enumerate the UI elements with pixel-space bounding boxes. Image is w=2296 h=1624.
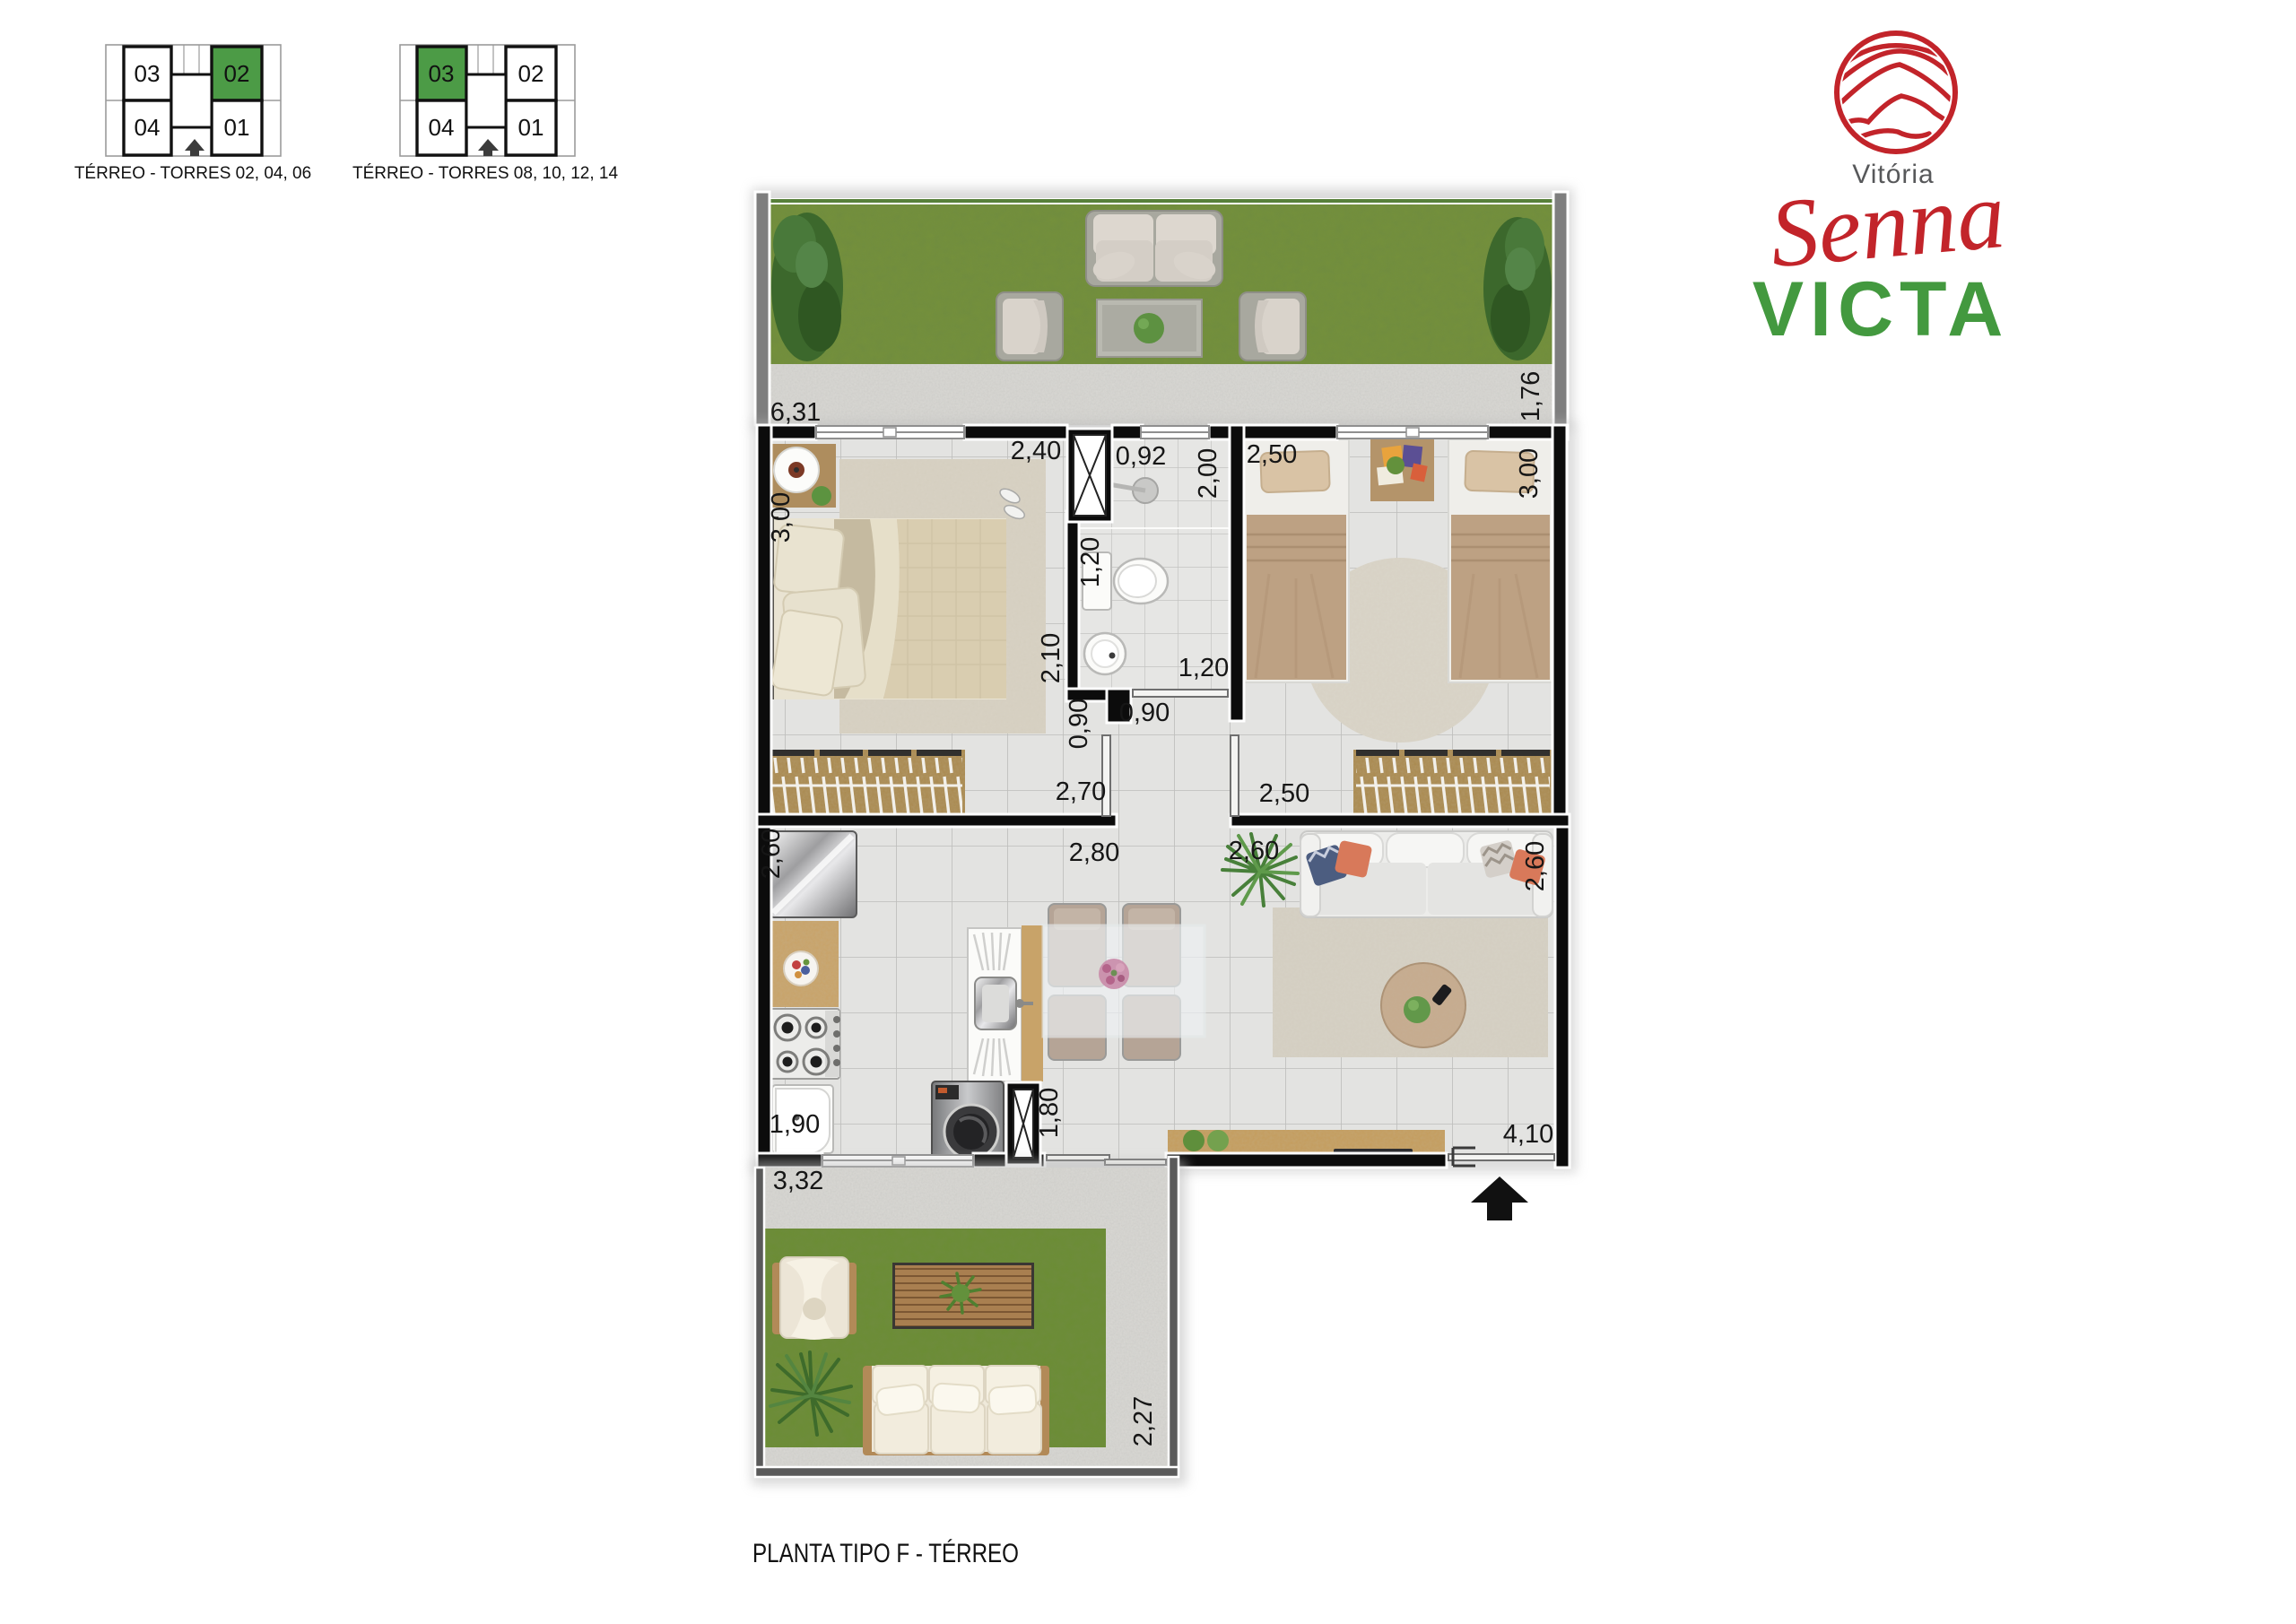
svg-text:01: 01 [518, 114, 544, 141]
svg-text:3,00: 3,00 [1515, 448, 1544, 499]
svg-text:0,90: 0,90 [1119, 699, 1170, 727]
svg-text:1,90: 1,90 [770, 1110, 820, 1139]
svg-text:2,40: 2,40 [1011, 437, 1061, 465]
svg-text:3,00: 3,00 [767, 492, 796, 543]
svg-text:03: 03 [429, 60, 455, 87]
svg-text:2,60: 2,60 [1229, 837, 1279, 865]
svg-text:01: 01 [224, 114, 250, 141]
svg-text:1,20: 1,20 [1076, 537, 1105, 587]
svg-text:TÉRREO - TORRES 02, 04, 06: TÉRREO - TORRES 02, 04, 06 [74, 164, 311, 183]
svg-text:1,20: 1,20 [1178, 654, 1229, 682]
svg-text:02: 02 [518, 60, 544, 87]
svg-text:02: 02 [224, 60, 250, 87]
svg-text:2,60: 2,60 [1521, 841, 1550, 891]
svg-text:4,10: 4,10 [1503, 1120, 1553, 1149]
svg-text:03: 03 [135, 60, 161, 87]
svg-text:2,50: 2,50 [1259, 779, 1309, 808]
svg-text:1,80: 1,80 [1035, 1088, 1064, 1138]
svg-text:3,32: 3,32 [773, 1167, 823, 1195]
svg-text:2,80: 2,80 [1069, 838, 1119, 867]
svg-text:0,90: 0,90 [1065, 699, 1093, 749]
svg-text:2,50: 2,50 [1247, 440, 1297, 469]
svg-text:2,70: 2,70 [1056, 777, 1106, 806]
svg-text:VICTA: VICTA [1752, 266, 2010, 352]
svg-text:2,10: 2,10 [1037, 633, 1065, 683]
svg-text:04: 04 [429, 114, 455, 141]
svg-text:2,60: 2,60 [757, 829, 786, 879]
svg-text:2,27: 2,27 [1129, 1396, 1158, 1446]
svg-text:1,76: 1,76 [1517, 371, 1545, 421]
svg-text:2,00: 2,00 [1194, 448, 1222, 499]
svg-text:PLANTA TIPO F - TÉRREO: PLANTA TIPO F - TÉRREO [752, 1539, 1019, 1568]
svg-text:0,92: 0,92 [1116, 442, 1166, 471]
svg-text:TÉRREO - TORRES 08, 10, 12, 14: TÉRREO - TORRES 08, 10, 12, 14 [352, 164, 618, 183]
svg-text:04: 04 [135, 114, 161, 141]
svg-text:6,31: 6,31 [770, 398, 821, 427]
